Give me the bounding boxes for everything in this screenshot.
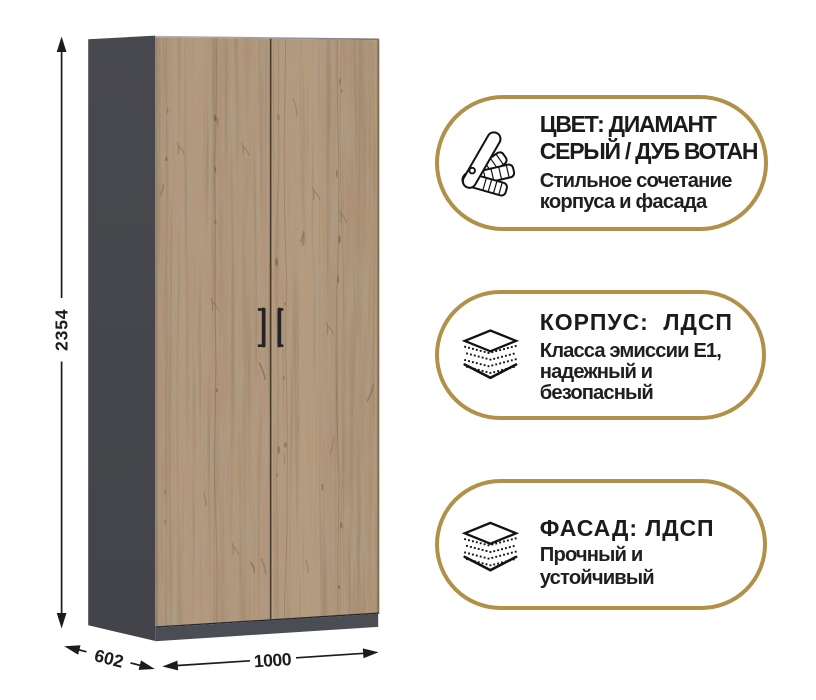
svg-text:602: 602: [92, 645, 125, 672]
svg-text:2354: 2354: [52, 309, 72, 351]
svg-text:1000: 1000: [253, 649, 292, 671]
